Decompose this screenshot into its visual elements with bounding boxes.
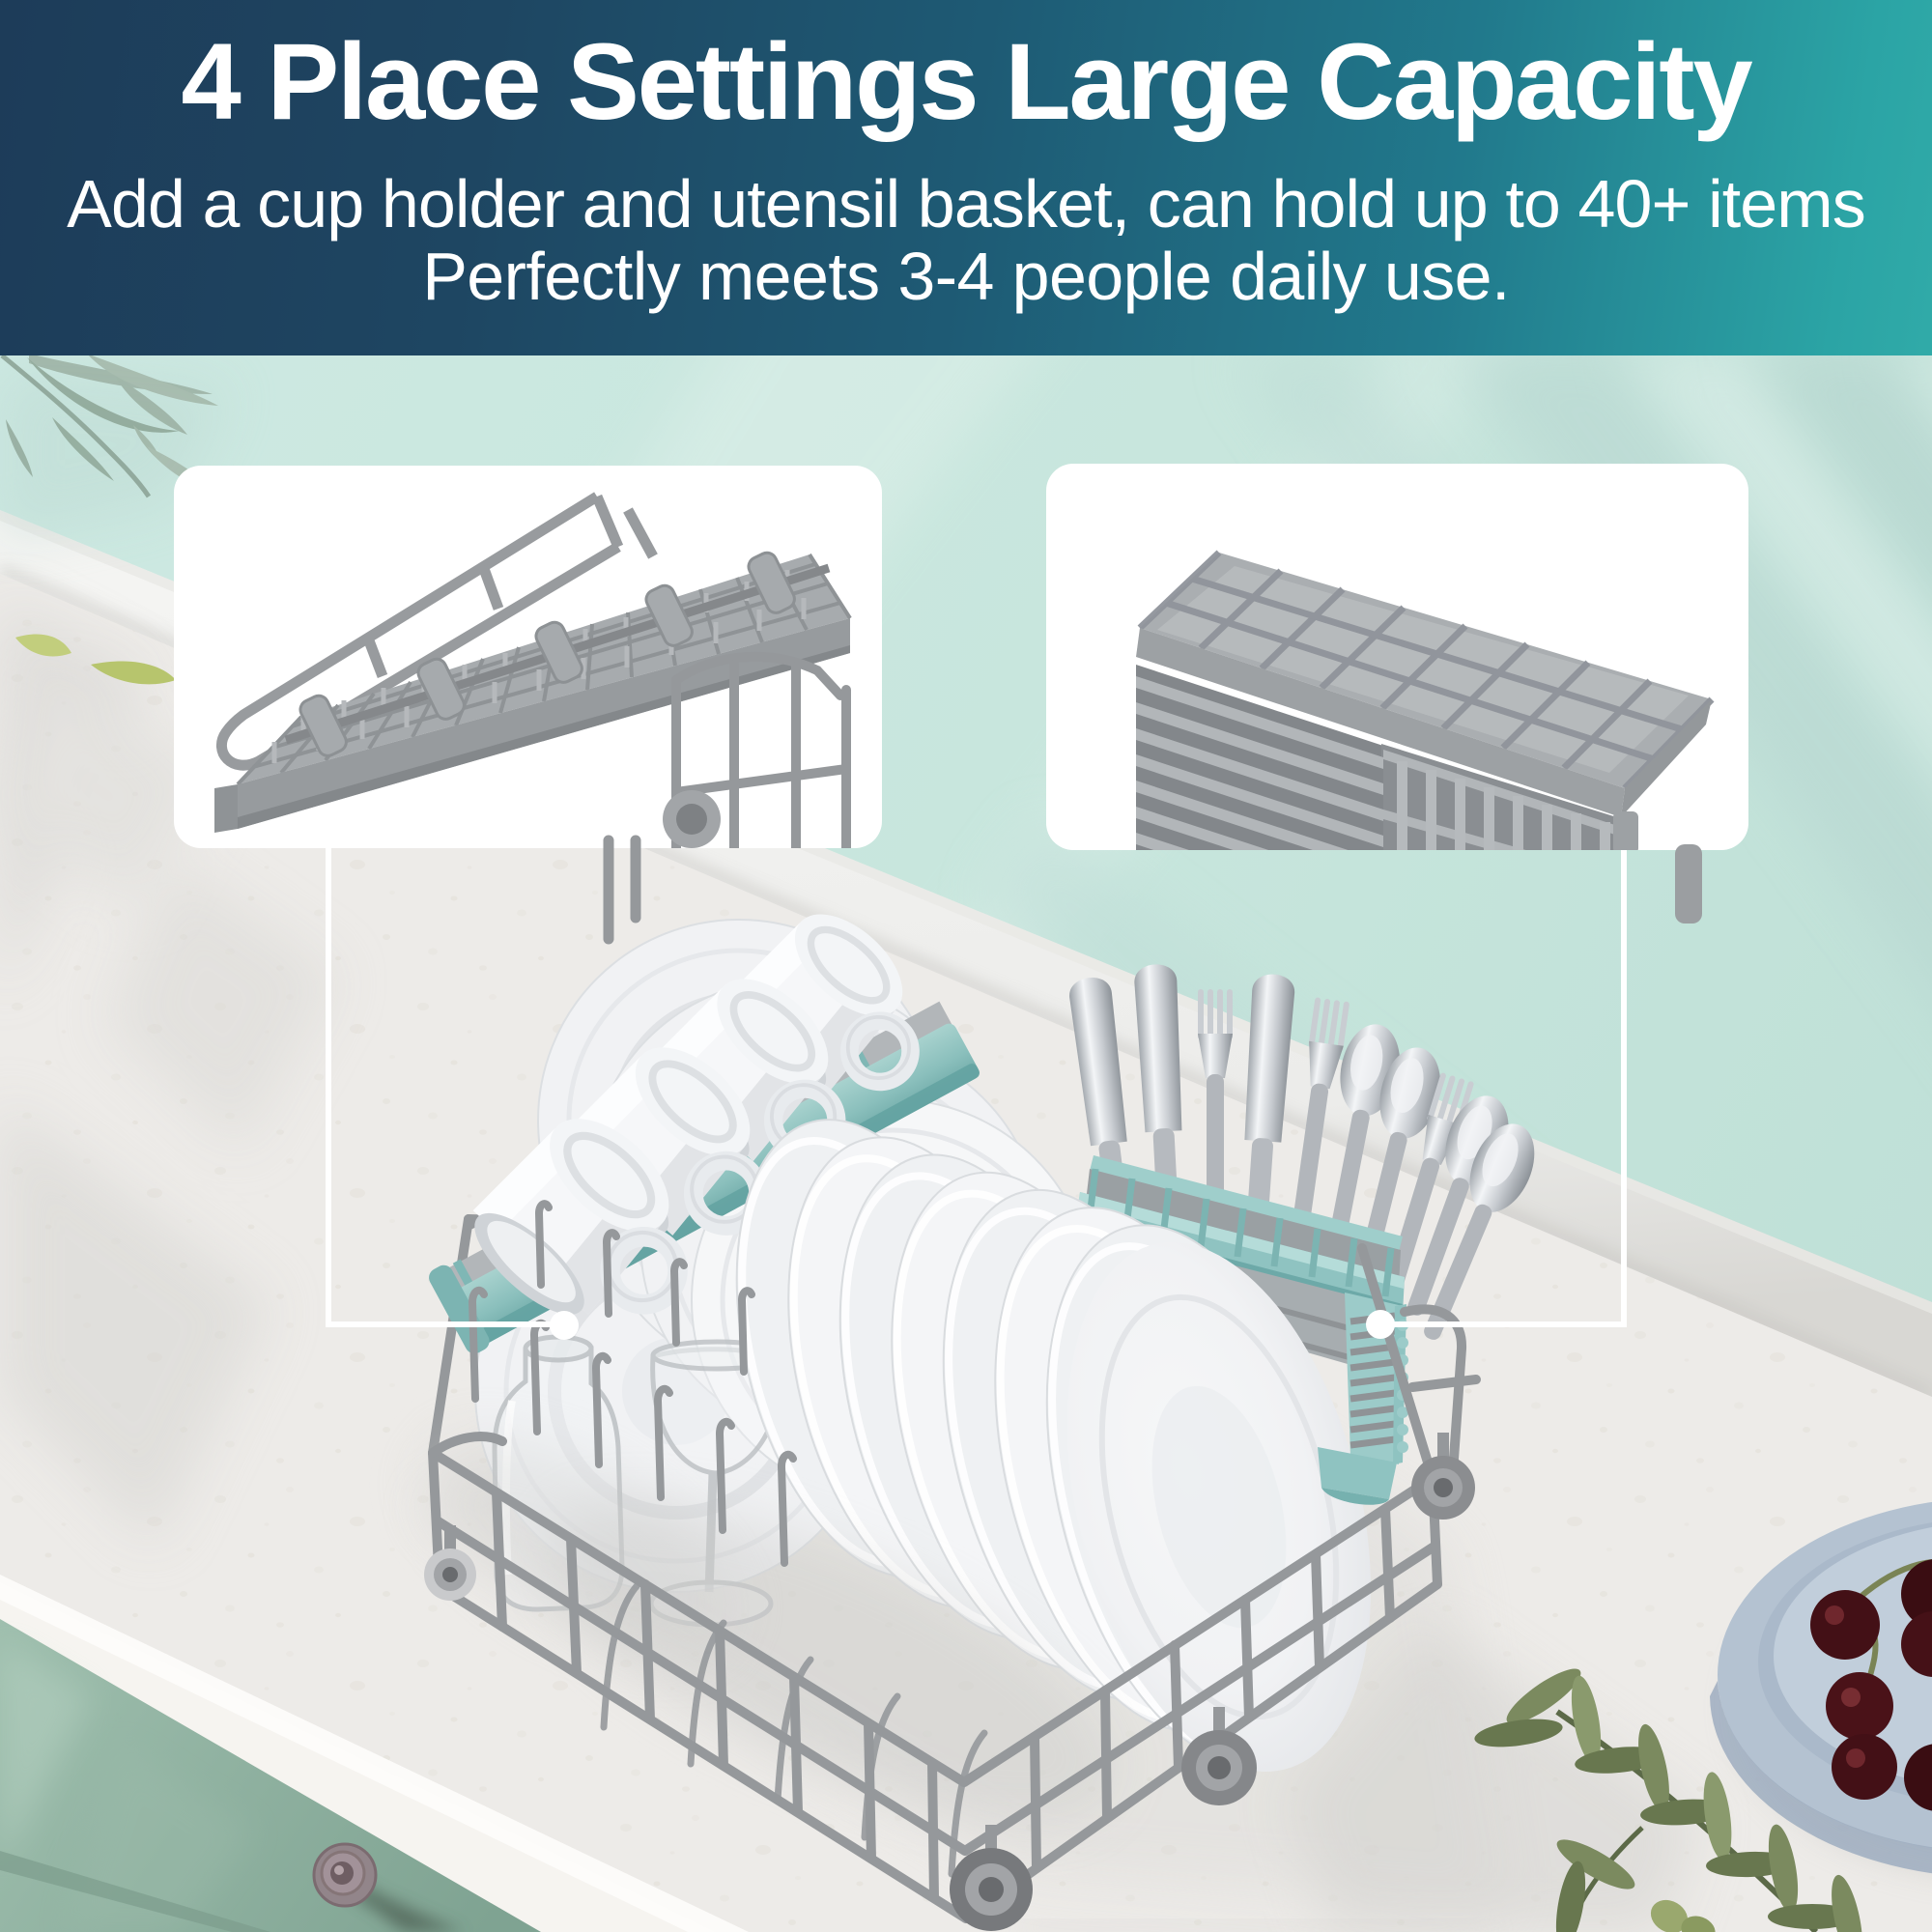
svg-text:Add a cup holder and utensil b: Add a cup holder and utensil basket, can… xyxy=(67,166,1865,241)
svg-text:Perfectly meets 3-4 people dai: Perfectly meets 3-4 people daily use. xyxy=(422,239,1510,314)
svg-text:4 Place Settings Large Capacit: 4 Place Settings Large Capacity xyxy=(182,21,1753,142)
